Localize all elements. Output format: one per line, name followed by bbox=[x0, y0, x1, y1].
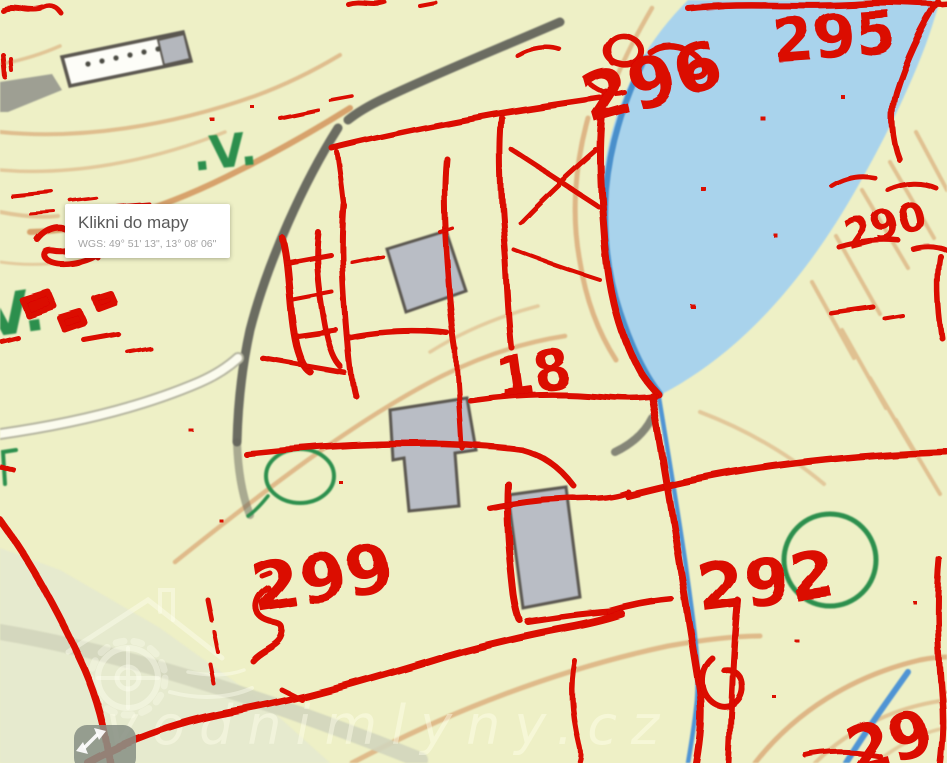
parcel-label-292: 292 bbox=[693, 535, 839, 628]
move-map-control[interactable] bbox=[74, 725, 136, 763]
parcel-label-296: 296 bbox=[573, 25, 731, 140]
tooltip-coordinates: WGS: 49° 51' 13", 13° 08' 06" bbox=[78, 238, 216, 250]
diagonal-move-arrows-icon bbox=[74, 725, 108, 757]
parcel-label-29: 29 bbox=[839, 696, 940, 763]
tooltip-title: Klikni do mapy bbox=[78, 213, 216, 233]
cadastral-lines bbox=[0, 2, 947, 763]
map-canvas[interactable]: .V. V. vodnimlyny.cz bbox=[0, 0, 947, 763]
cadastral-overlay: 296 295 290 18 299 292 29 bbox=[0, 0, 947, 763]
map-tooltip: Klikni do mapy WGS: 49° 51' 13", 13° 08'… bbox=[65, 204, 230, 258]
parcel-label-18: 18 bbox=[492, 337, 575, 410]
parcel-label-299: 299 bbox=[246, 529, 399, 629]
parcel-label-295: 295 bbox=[769, 0, 899, 76]
